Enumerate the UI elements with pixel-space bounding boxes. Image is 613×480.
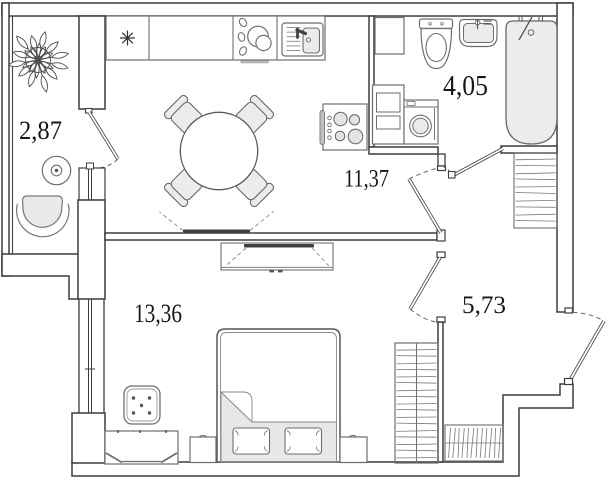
- svg-text:11,37: 11,37: [344, 166, 389, 193]
- svg-text:5,73: 5,73: [462, 292, 506, 319]
- svg-text:13,36: 13,36: [134, 299, 182, 328]
- svg-text:4,05: 4,05: [443, 70, 488, 102]
- svg-text:2,87: 2,87: [19, 116, 62, 145]
